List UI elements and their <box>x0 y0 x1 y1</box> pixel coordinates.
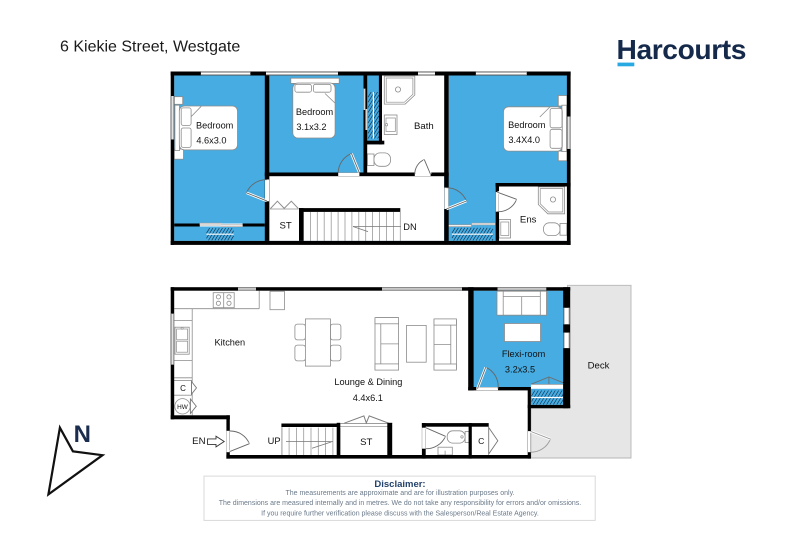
svg-text:The dimensions are measured in: The dimensions are measured internally a… <box>219 500 582 507</box>
svg-text:Bedroom: Bedroom <box>296 107 334 117</box>
svg-text:EN: EN <box>192 436 205 447</box>
svg-text:Harcourts: Harcourts <box>617 33 747 65</box>
svg-text:Lounge & Dining: Lounge & Dining <box>334 377 402 387</box>
svg-text:ST: ST <box>279 221 291 232</box>
svg-text:Deck: Deck <box>588 361 610 372</box>
svg-text:If you require further verific: If you require further verification plea… <box>261 510 539 517</box>
svg-text:Ens: Ens <box>520 215 537 226</box>
svg-text:4.6x3.0: 4.6x3.0 <box>196 136 226 146</box>
svg-text:DN: DN <box>403 222 416 232</box>
svg-text:4.4x6.1: 4.4x6.1 <box>353 393 383 403</box>
svg-text:Bedroom: Bedroom <box>508 120 546 130</box>
svg-text:Kitchen: Kitchen <box>214 338 245 348</box>
svg-text:N: N <box>74 421 91 448</box>
svg-text:ST: ST <box>360 437 372 448</box>
svg-text:Bath: Bath <box>414 121 434 132</box>
svg-text:Flexi-room: Flexi-room <box>502 349 546 359</box>
svg-text:3.2x3.5: 3.2x3.5 <box>505 365 535 375</box>
svg-text:6 Kiekie Street, Westgate: 6 Kiekie Street, Westgate <box>60 39 240 56</box>
svg-text:3.4X4.0: 3.4X4.0 <box>508 135 540 145</box>
svg-text:UP: UP <box>268 436 281 446</box>
svg-text:Disclaimer:: Disclaimer: <box>374 479 425 490</box>
svg-text:The measurements are approxima: The measurements are approximate and are… <box>285 490 514 497</box>
svg-text:C: C <box>478 436 484 446</box>
svg-text:3.1x3.2: 3.1x3.2 <box>296 122 326 132</box>
svg-text:HW: HW <box>177 404 189 411</box>
svg-text:C: C <box>180 384 186 393</box>
svg-text:Bedroom: Bedroom <box>196 121 234 131</box>
